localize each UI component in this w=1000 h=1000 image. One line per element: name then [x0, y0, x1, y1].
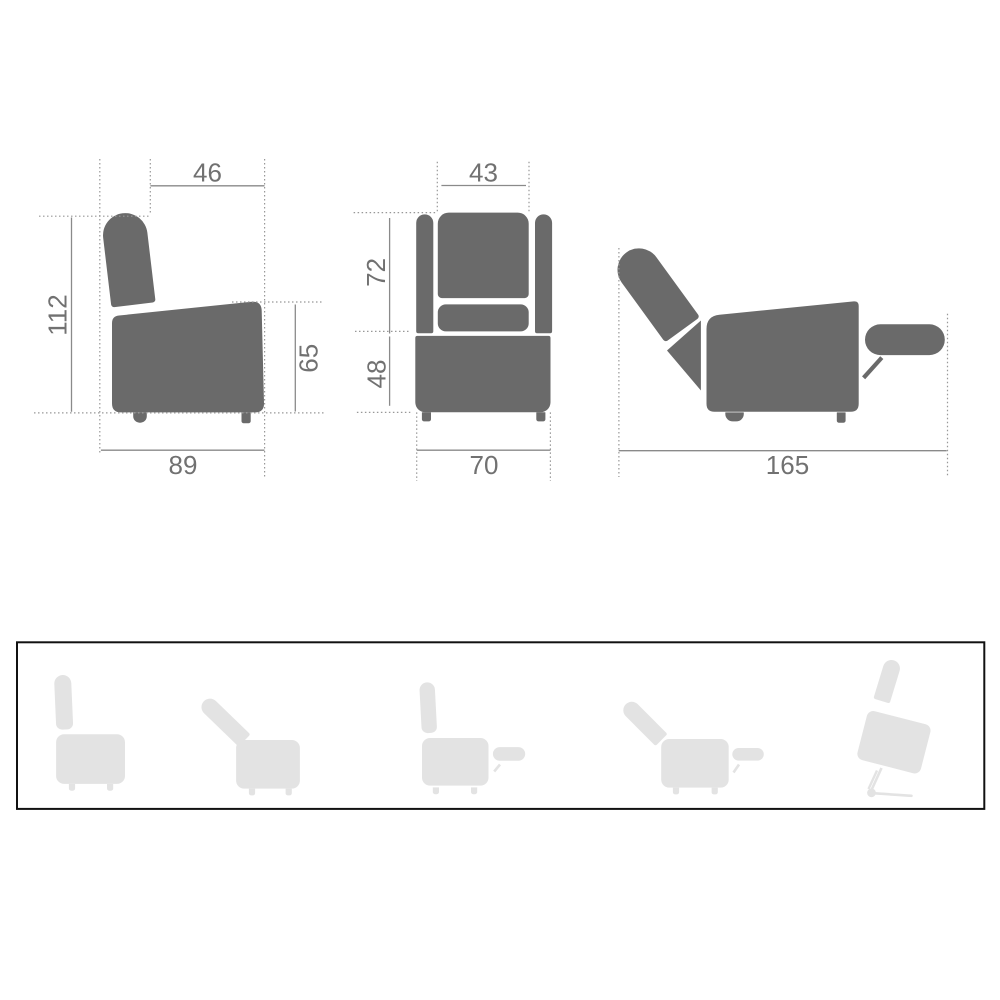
svg-text:165: 165	[766, 450, 809, 480]
svg-text:112: 112	[43, 294, 73, 335]
svg-text:46: 46	[193, 158, 222, 188]
svg-text:89: 89	[169, 450, 198, 480]
svg-text:72: 72	[361, 258, 391, 287]
svg-text:70: 70	[470, 450, 499, 480]
svg-text:65: 65	[294, 344, 324, 373]
svg-text:48: 48	[361, 360, 391, 389]
svg-text:43: 43	[469, 157, 498, 187]
